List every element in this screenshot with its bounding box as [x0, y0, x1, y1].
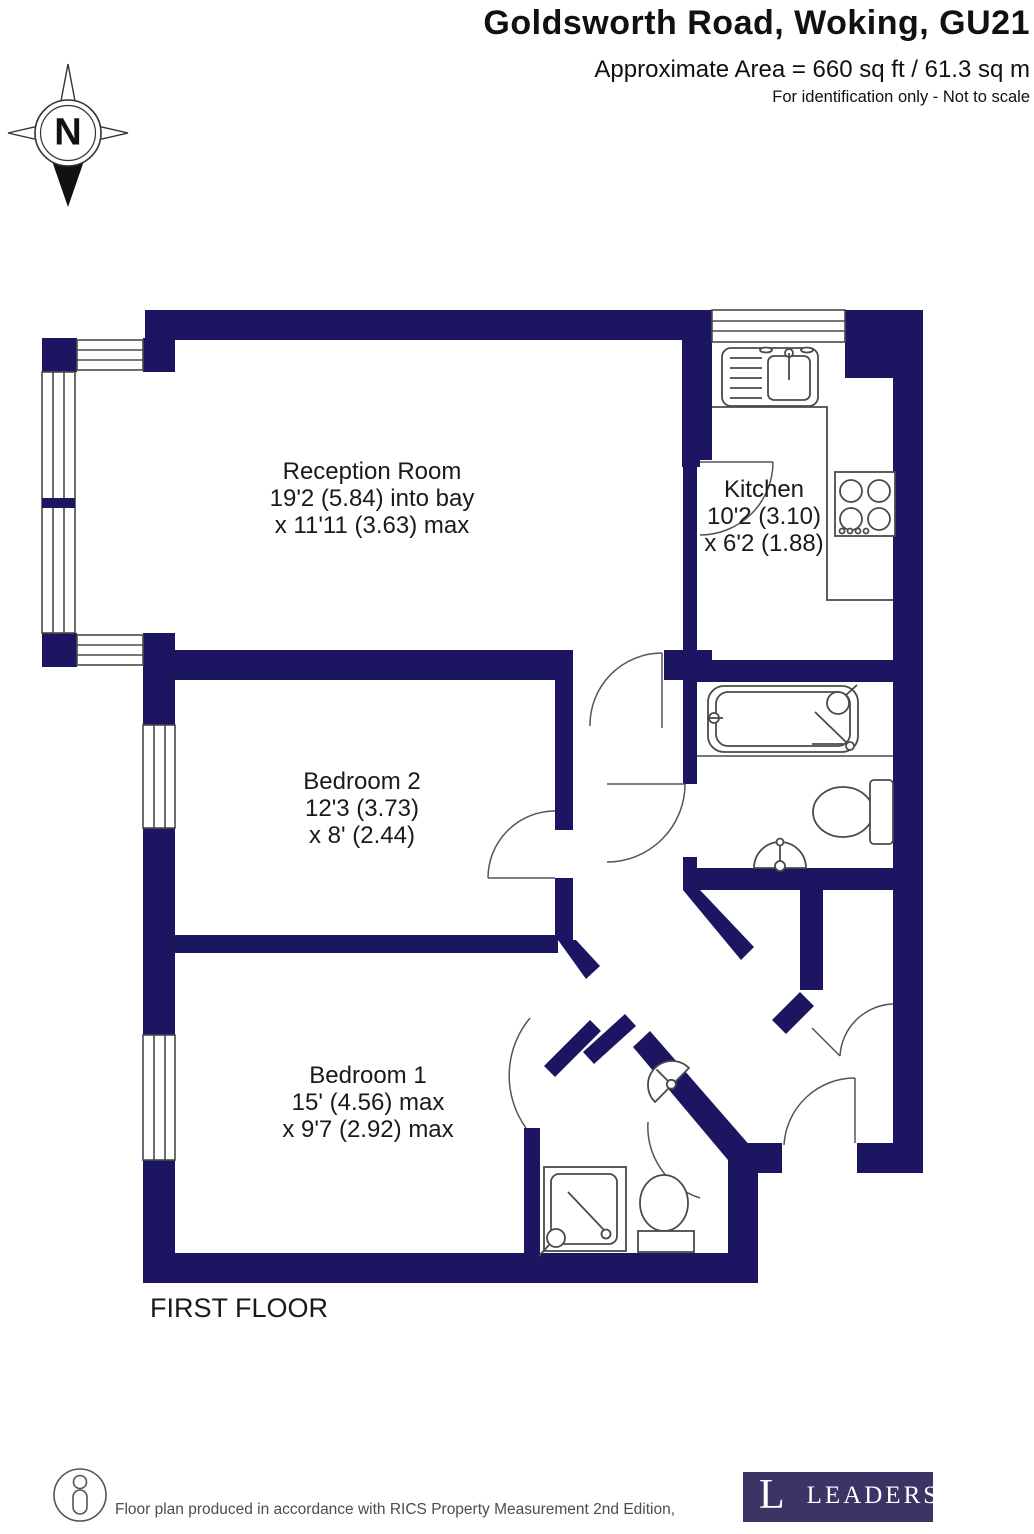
- hall-door: [590, 653, 662, 728]
- approximate-area: Approximate Area = 660 sq ft / 61.3 sq m: [594, 56, 1030, 84]
- floorplan-page: Goldsworth Road, Woking, GU21 Approximat…: [0, 0, 1034, 1534]
- room-name: Bedroom 1: [282, 1062, 453, 1089]
- wall-right: [893, 378, 923, 1143]
- entrance-door: [784, 1078, 855, 1145]
- bay-window-top: [77, 340, 143, 370]
- room-dim2: x 6'2 (1.88): [704, 530, 823, 557]
- page-title: Goldsworth Road, Woking, GU21: [483, 4, 1030, 43]
- room-label-bedroom2: Bedroom 2 12'3 (3.73) x 8' (2.44): [303, 768, 420, 849]
- wall-kitchen-divider: [682, 340, 712, 460]
- toilet-ensuite: [638, 1175, 694, 1252]
- wall-hall-diagonal: [683, 890, 754, 960]
- wall-hall-bottom-right: [857, 1143, 923, 1173]
- room-dim1: 12'3 (3.73): [303, 795, 420, 822]
- room-name: Bedroom 2: [303, 768, 420, 795]
- wall-top-right-corner: [845, 310, 923, 378]
- wall-cupboard: [800, 890, 823, 990]
- room-dim2: x 11'11 (3.63) max: [270, 512, 475, 539]
- bedroom1-window: [143, 1035, 175, 1160]
- room-dim2: x 8' (2.44): [303, 822, 420, 849]
- wall-diag-stub-cupboard: [772, 992, 814, 1034]
- wall-bed2-right-b: [555, 878, 573, 940]
- compass-north-label: N: [54, 112, 81, 155]
- person-icon: [54, 1469, 106, 1521]
- wall-left-d: [143, 1160, 175, 1283]
- cupboard-door: [812, 1004, 893, 1056]
- shower: [539, 1167, 626, 1256]
- room-label-kitchen: Kitchen 10'2 (3.10) x 6'2 (1.88): [704, 476, 823, 557]
- bay-corner-top: [42, 338, 77, 372]
- wall-kitchen-door-stub: [682, 455, 700, 467]
- basin-bathroom: [754, 839, 806, 872]
- wall-bed2-right-a: [555, 680, 573, 830]
- kitchen-hob: [835, 472, 895, 536]
- bathtub: [707, 685, 858, 752]
- bathroom-door: [607, 784, 685, 862]
- wall-ensuite-west: [524, 1128, 540, 1253]
- room-label-bedroom1: Bedroom 1 15' (4.56) max x 9'7 (2.92) ma…: [282, 1062, 453, 1143]
- room-dim1: 19'2 (5.84) into bay: [270, 485, 475, 512]
- wall-bottom: [145, 1253, 758, 1283]
- leaders-logo-initial: L: [743, 1471, 795, 1524]
- bay-corner-bottom: [42, 633, 77, 667]
- wall-left-c: [143, 828, 175, 1035]
- room-name: Kitchen: [704, 476, 823, 503]
- wall-bathroom-left-b: [683, 857, 697, 890]
- room-dim1: 10'2 (3.10): [704, 503, 823, 530]
- kitchen-sink: [722, 348, 818, 407]
- wall-left-a: [143, 338, 175, 372]
- bedroom2-door: [488, 811, 555, 878]
- room-name: Reception Room: [270, 458, 475, 485]
- room-dim2: x 9'7 (2.92) max: [282, 1116, 453, 1143]
- wall-reception-bottom: [143, 650, 573, 680]
- toilet-bathroom: [813, 780, 893, 844]
- wall-bathroom-left: [683, 460, 697, 784]
- kitchen-window: [712, 310, 845, 342]
- bay-window-mullion: [42, 498, 75, 508]
- wall-wc-bottom: [697, 868, 893, 890]
- scale-disclaimer: For identification only - Not to scale: [772, 88, 1030, 107]
- footer-line1: Floor plan produced in accordance with R…: [115, 1500, 814, 1520]
- leaders-logo: L LEADERS: [743, 1472, 933, 1522]
- wall-diag-stub-bed2: [558, 940, 600, 979]
- bay-window-bottom: [77, 635, 143, 665]
- floor-label: FIRST FLOOR: [150, 1293, 328, 1324]
- room-dim1: 15' (4.56) max: [282, 1089, 453, 1116]
- wall-connector: [728, 1173, 758, 1253]
- wall-bathroom-top: [697, 660, 893, 682]
- wall-bed-divider: [143, 935, 558, 953]
- wall-top: [145, 310, 712, 340]
- footer-disclaimer: Floor plan produced in accordance with R…: [115, 1461, 814, 1534]
- room-label-reception: Reception Room 19'2 (5.84) into bay x 11…: [270, 458, 475, 539]
- bedroom1-door: [509, 1018, 530, 1128]
- bedroom2-window: [143, 725, 175, 828]
- leaders-logo-name: LEADERS: [795, 1482, 941, 1512]
